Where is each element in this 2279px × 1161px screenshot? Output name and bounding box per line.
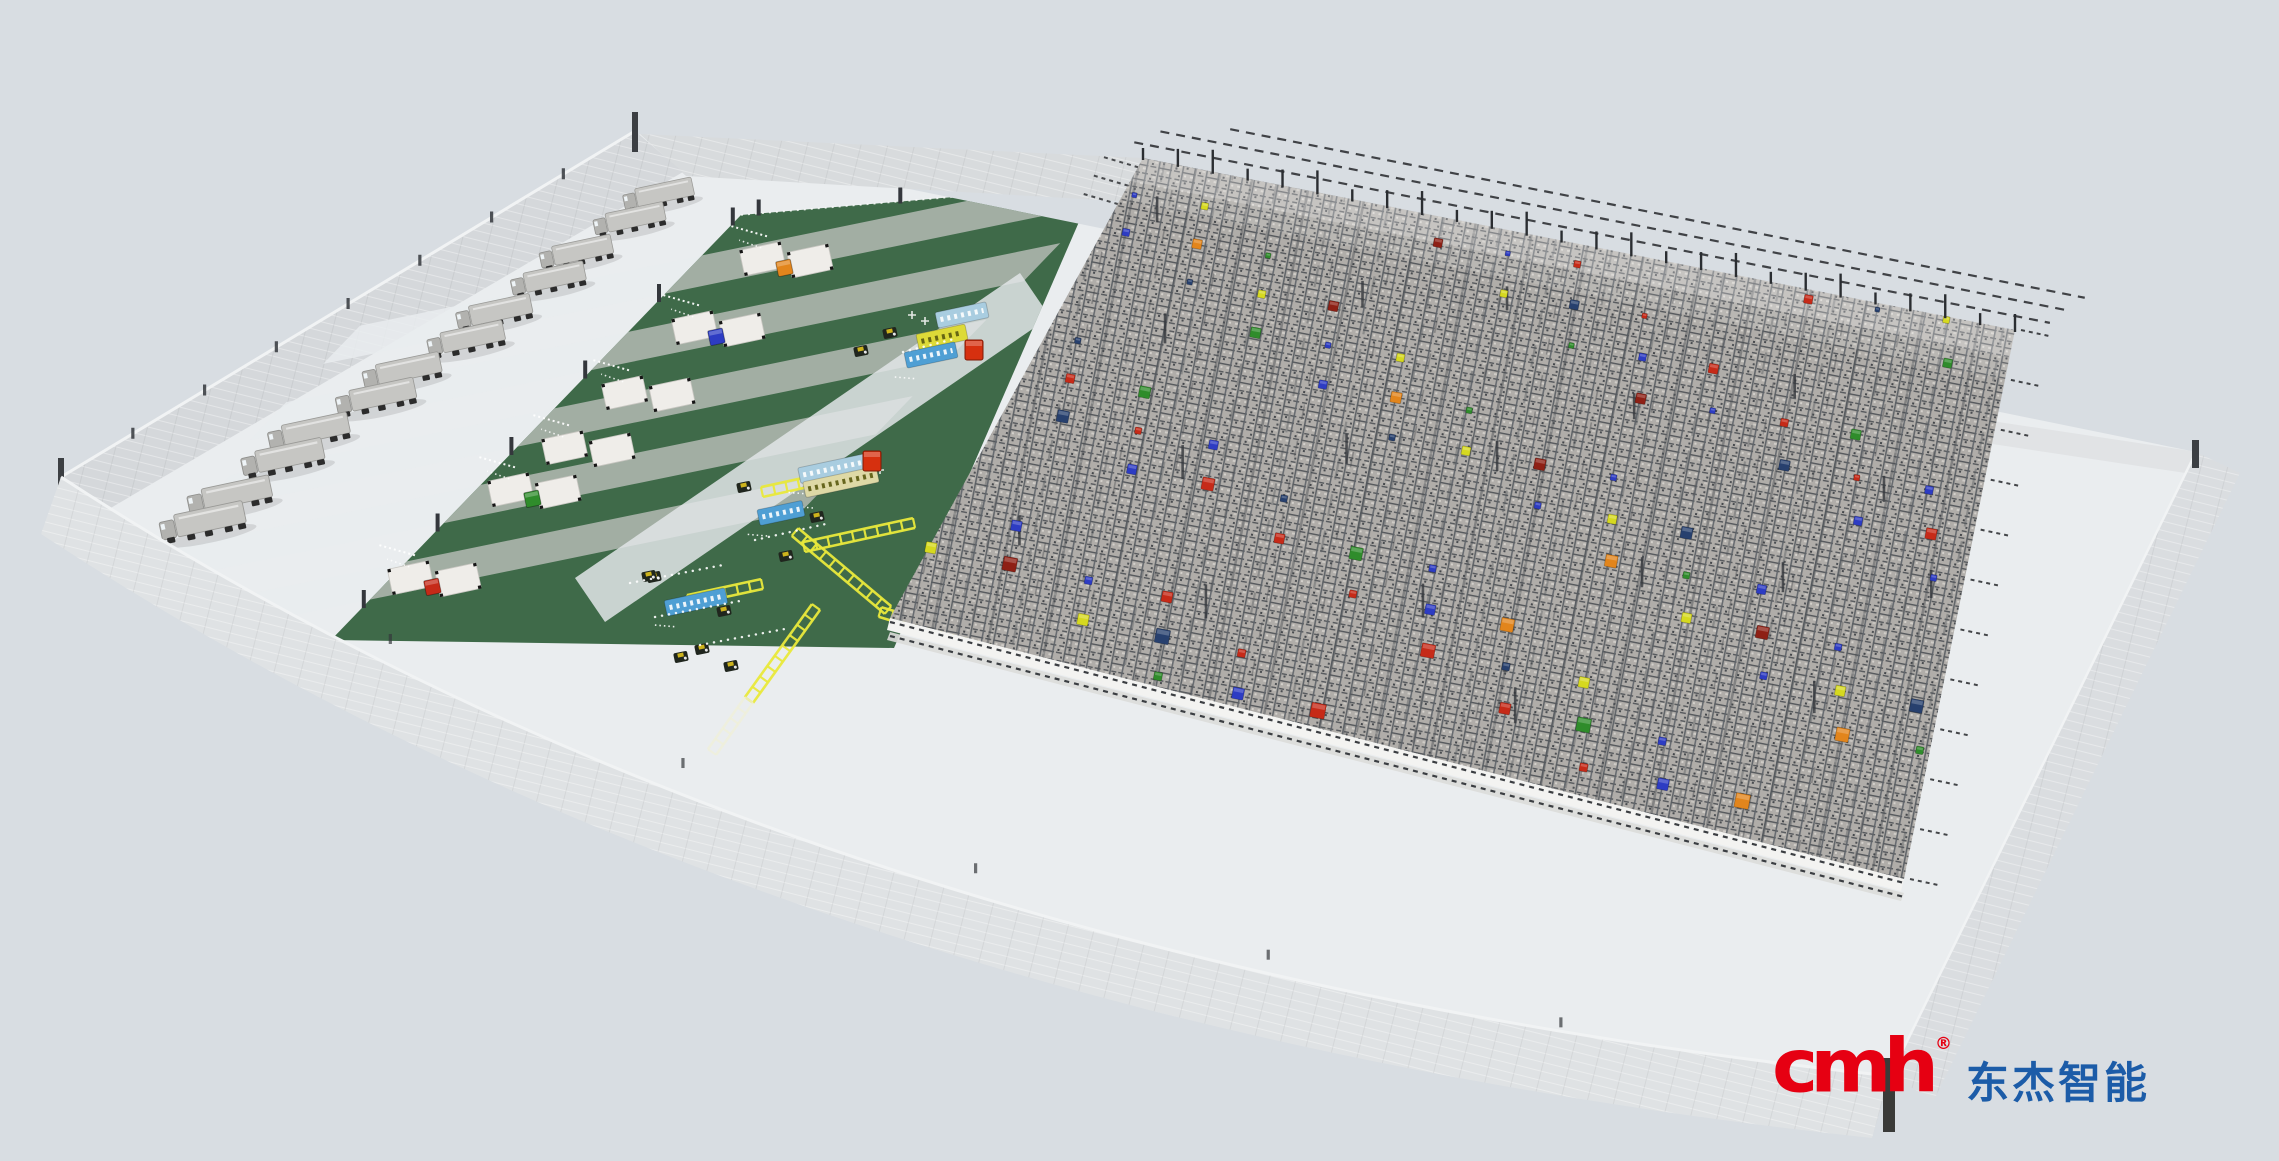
dock-post	[509, 437, 513, 455]
rack-stored-pallet	[1780, 418, 1789, 427]
rack-stored-pallet	[1501, 662, 1510, 671]
rack-stored-pallet	[1803, 294, 1813, 304]
back-right-corner-post	[2192, 440, 2199, 468]
rack-stored-pallet	[1930, 574, 1938, 582]
rack-stored-pallet	[1390, 391, 1403, 404]
rack-stored-pallet	[1578, 676, 1591, 689]
rack-stored-pallet	[1420, 643, 1436, 659]
rack-stored-pallet	[1192, 238, 1203, 249]
rack-stored-pallet	[1122, 228, 1131, 237]
wall-post	[1267, 950, 1270, 960]
rack-stored-pallet	[1396, 353, 1406, 363]
rack-stored-pallet	[1466, 407, 1473, 414]
back-left-corner-post	[632, 112, 638, 152]
brand-wordmark-text: cmh	[1772, 1038, 1931, 1099]
rack-stored-pallet	[1348, 590, 1357, 599]
rack-stored-pallet	[1850, 429, 1862, 441]
rack-stored-pallet	[1349, 546, 1364, 561]
wall-post	[275, 341, 278, 352]
rack-stored-pallet	[1231, 687, 1245, 701]
rack-stored-pallet	[1208, 439, 1219, 450]
rack-stored-pallet	[1249, 327, 1261, 339]
wall-post	[681, 758, 684, 768]
rack-stored-pallet	[1499, 289, 1508, 298]
rack-stored-pallet	[1734, 792, 1751, 809]
rack-stored-pallet	[1154, 628, 1171, 645]
dock-post	[898, 188, 902, 204]
dock-post	[583, 361, 587, 379]
brand-wordmark: cmh ®	[1772, 1036, 1952, 1100]
rack-stored-pallet	[1756, 584, 1767, 595]
rack-stored-pallet	[1076, 613, 1089, 626]
rack-stored-pallet	[1424, 603, 1436, 615]
rack-stored-pallet	[1433, 238, 1443, 248]
red-pallet-box	[965, 340, 983, 360]
rack-stored-pallet	[1573, 260, 1581, 268]
rack-stored-pallet	[1834, 643, 1842, 651]
rack-stored-pallet	[1309, 702, 1326, 719]
rack-stored-pallet	[1641, 313, 1647, 319]
rack-stored-pallet	[1681, 612, 1693, 624]
rack-stored-pallet	[1708, 363, 1719, 374]
dock-post	[362, 590, 366, 608]
rack-stored-pallet	[1604, 554, 1618, 568]
rack-stored-pallet	[1131, 192, 1137, 198]
rack-stored-pallet	[1925, 527, 1938, 540]
wall-post	[974, 863, 977, 873]
rack-stored-pallet	[1237, 648, 1246, 657]
rack-stored-pallet	[1428, 564, 1436, 572]
rack-stored-pallet	[1680, 526, 1694, 540]
rack-stored-pallet	[1328, 300, 1340, 312]
rack-stored-pallet	[1318, 380, 1328, 390]
rack-stored-pallet	[1257, 290, 1266, 299]
rack-stored-pallet	[1065, 373, 1076, 384]
rack-stored-pallet	[1325, 342, 1332, 349]
rack-stored-pallet	[1759, 671, 1768, 680]
wall-post	[347, 298, 350, 309]
red-pallet-box	[863, 451, 881, 471]
rack-stored-pallet	[1875, 307, 1881, 313]
rack-stored-pallet	[1909, 698, 1924, 713]
rack-stored-pallet	[1635, 393, 1647, 405]
rack-stored-pallet	[1942, 358, 1953, 369]
wall-post	[418, 255, 421, 266]
rack-stored-pallet	[1126, 464, 1137, 475]
rack-stored-pallet	[1656, 778, 1669, 791]
simulation-viewport[interactable]: cmh ® 东杰智能	[0, 0, 2279, 1161]
rack-stored-pallet	[1834, 727, 1850, 743]
rack-stored-pallet	[1280, 495, 1288, 503]
rack-stored-pallet	[1607, 514, 1618, 525]
rack-stored-pallet	[1461, 446, 1471, 456]
rack-stored-pallet	[1010, 520, 1022, 532]
rack-stored-pallet	[1755, 625, 1770, 640]
brand-logo: cmh ® 东杰智能	[1772, 1036, 2150, 1111]
dock-post	[436, 514, 440, 532]
wall-post	[389, 634, 392, 644]
rack-stored-pallet	[1575, 717, 1592, 734]
rack-stored-pallet	[1201, 477, 1216, 492]
rack-stored-pallet	[1498, 702, 1511, 715]
rack-stored-pallet	[1709, 407, 1716, 414]
wall-post	[490, 212, 493, 223]
dock-post	[657, 284, 661, 302]
wall-post	[203, 385, 206, 396]
rack-stored-pallet	[1778, 459, 1791, 472]
rack-stored-pallet	[1610, 474, 1617, 481]
rack-stored-pallet	[1915, 746, 1924, 755]
rack-stored-pallet	[1579, 763, 1589, 773]
wall-post	[131, 428, 134, 439]
rack-stored-pallet	[924, 541, 937, 554]
wall-post	[562, 168, 565, 179]
rack-stored-pallet	[1274, 533, 1286, 545]
rack-stored-pallet	[1834, 685, 1846, 697]
warehouse-3d-scene	[0, 0, 2279, 1161]
rack-stored-pallet	[1568, 342, 1575, 349]
rack-stored-pallet	[1658, 737, 1667, 746]
rack-stored-pallet	[1533, 458, 1546, 471]
rack-stored-pallet	[1153, 671, 1163, 681]
dock-post	[757, 200, 761, 216]
rack-stored-pallet	[1853, 474, 1860, 481]
rack-stored-pallet	[1638, 353, 1647, 362]
rack-stored-pallet	[1500, 617, 1515, 632]
rack-stored-pallet	[1161, 591, 1174, 604]
rack-stored-pallet	[1201, 202, 1209, 210]
rack-stored-pallet	[1134, 427, 1142, 435]
rack-stored-pallet	[1505, 251, 1511, 257]
rack-stored-pallet	[1084, 576, 1093, 585]
rack-stored-pallet	[1388, 434, 1396, 442]
dock-post	[731, 208, 735, 226]
rack-stored-pallet	[1924, 485, 1934, 495]
rack-stored-pallet	[1534, 502, 1542, 510]
rack-stored-pallet	[1569, 299, 1580, 310]
brand-name-chinese: 东杰智能	[1966, 1049, 2150, 1111]
rack-stored-pallet	[1002, 556, 1018, 572]
rack-stored-pallet	[1682, 571, 1690, 579]
rack-stored-pallet	[1186, 279, 1193, 286]
rack-stored-pallet	[1853, 516, 1863, 526]
wall-post	[1559, 1017, 1562, 1027]
rack-stored-pallet	[1056, 409, 1070, 423]
rack-stored-pallet	[1074, 337, 1081, 344]
rack-stored-pallet	[1265, 252, 1271, 258]
registered-trademark-icon: ®	[1935, 1034, 1952, 1054]
rack-stored-pallet	[1138, 385, 1151, 398]
